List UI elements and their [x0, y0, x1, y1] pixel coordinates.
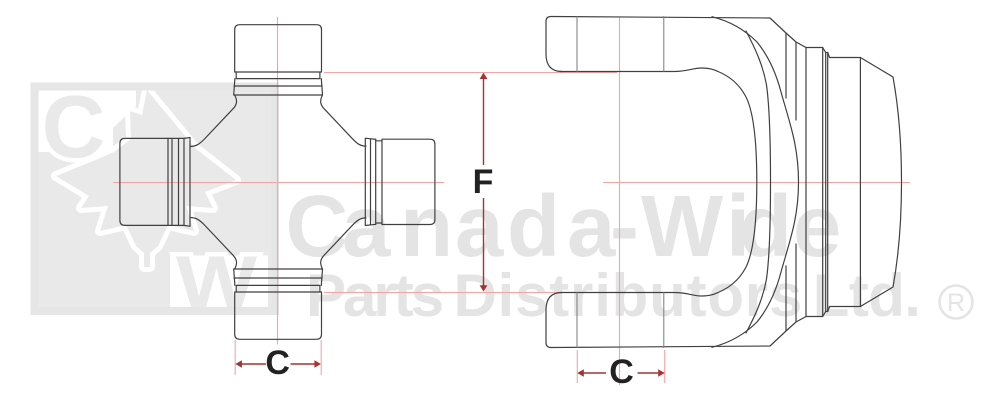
svg-text:C: C: [42, 77, 106, 176]
svg-text:F: F: [473, 163, 494, 201]
svg-text:Canada-Wide: Canada-Wide: [286, 178, 842, 275]
svg-text:C: C: [265, 344, 290, 382]
svg-text:R: R: [947, 289, 965, 317]
svg-text:C: C: [609, 353, 634, 391]
